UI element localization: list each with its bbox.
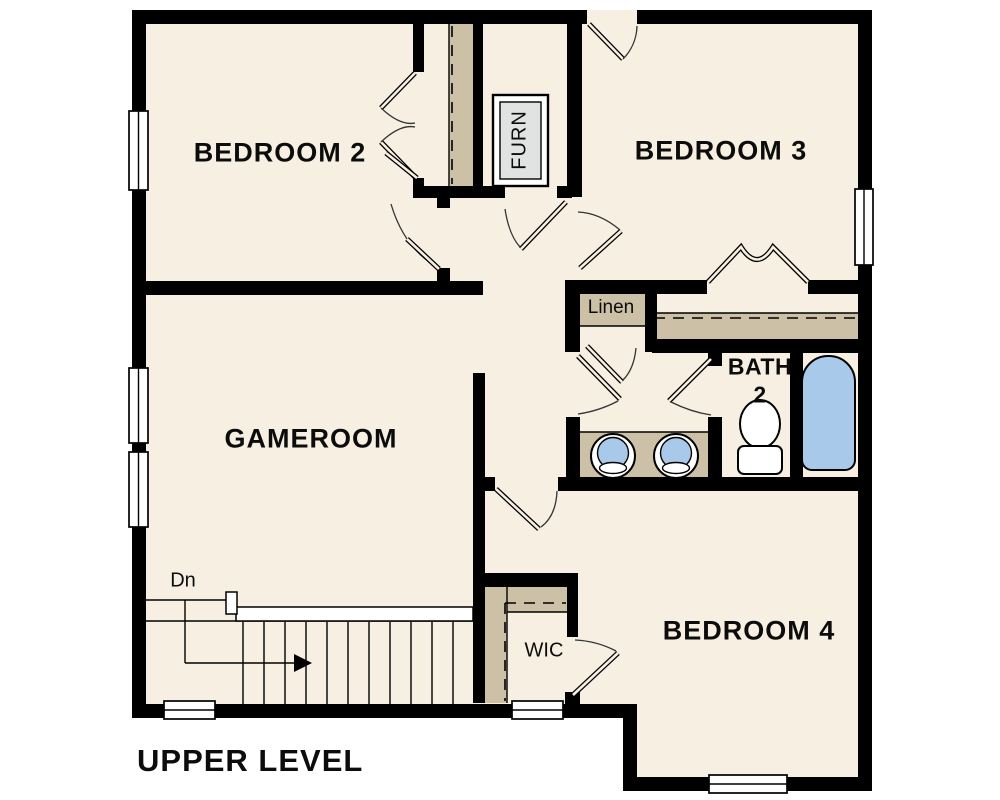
window bbox=[512, 701, 563, 719]
window bbox=[709, 775, 787, 793]
stairs-down-label: Dn bbox=[170, 570, 196, 593]
vanity-sink bbox=[654, 434, 698, 478]
bedroom3-label: BEDROOM 3 bbox=[635, 136, 808, 167]
linen-label: Linen bbox=[588, 297, 635, 319]
wic-label: WIC bbox=[525, 640, 564, 663]
bath2-label: BATH 2 bbox=[728, 353, 792, 408]
bedroom2-label: BEDROOM 2 bbox=[194, 138, 367, 169]
bathtub bbox=[802, 356, 855, 470]
floor-plan-drawing bbox=[0, 0, 1000, 800]
window bbox=[855, 189, 873, 265]
window bbox=[129, 368, 148, 443]
bath2-label-name: BATH bbox=[728, 353, 792, 381]
vanity-sink bbox=[591, 434, 635, 478]
bedroom4-label: BEDROOM 4 bbox=[663, 616, 836, 647]
toilet bbox=[738, 400, 782, 474]
plan-title: UPPER LEVEL bbox=[137, 743, 363, 779]
window bbox=[129, 452, 148, 527]
floor-plan: BEDROOM 2 BEDROOM 3 GAMEROOM BEDROOM 4 B… bbox=[0, 0, 1000, 800]
window bbox=[164, 701, 215, 719]
bath2-label-number: 2 bbox=[728, 381, 792, 409]
furnace-label: FURN bbox=[509, 110, 532, 170]
gameroom-label: GAMEROOM bbox=[225, 424, 398, 455]
window bbox=[129, 111, 148, 190]
